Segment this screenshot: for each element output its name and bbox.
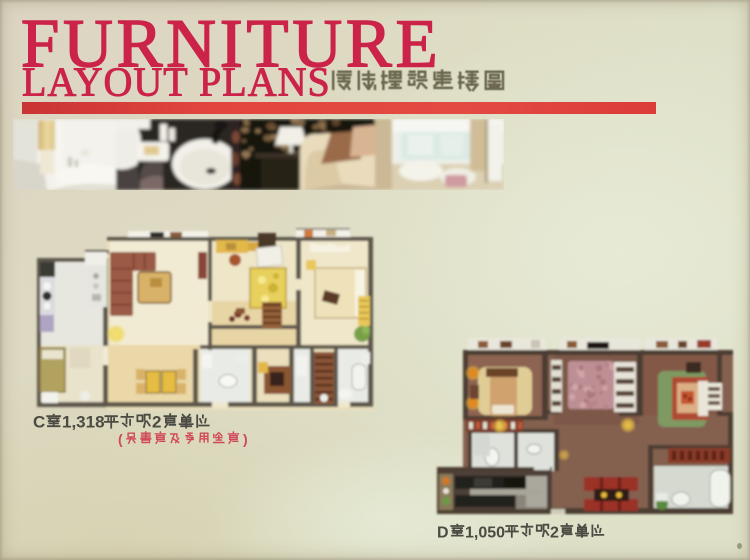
svg-text:C: C xyxy=(33,413,45,432)
svg-text:2: 2 xyxy=(550,525,559,542)
svg-text:): ) xyxy=(243,431,248,447)
svg-text:(: ( xyxy=(118,431,123,447)
svg-text:2: 2 xyxy=(152,413,161,432)
svg-text:1,318: 1,318 xyxy=(62,413,105,432)
svg-text:D: D xyxy=(437,525,449,542)
svg-text:1,050: 1,050 xyxy=(465,525,505,542)
